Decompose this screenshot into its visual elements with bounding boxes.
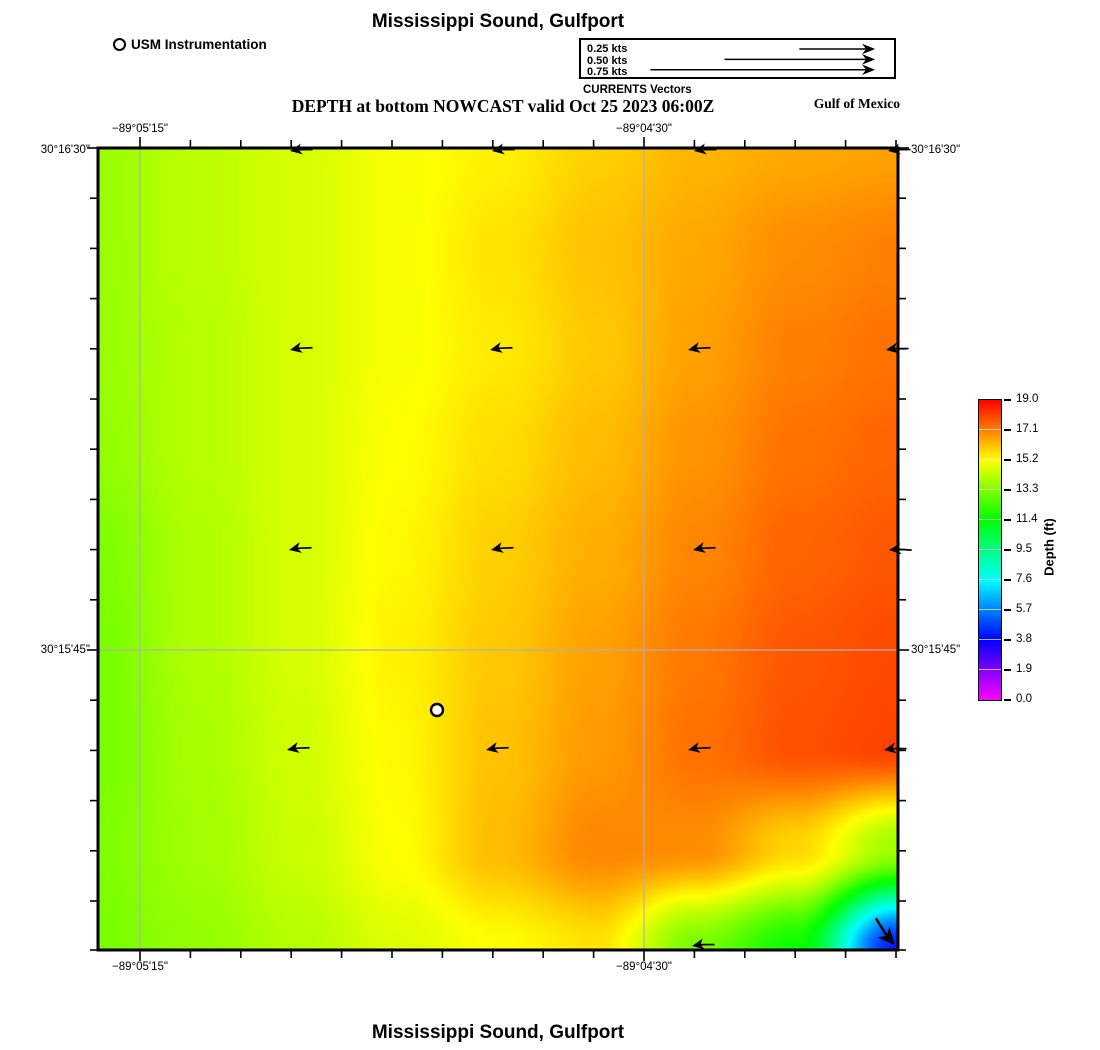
colorbar-tick	[1004, 639, 1012, 641]
colorbar-tick	[1004, 669, 1012, 671]
axis-tick-label: −89°05'15"	[112, 123, 168, 135]
colorbar-tick	[1004, 549, 1012, 551]
colorbar-tick-label: 11.4	[1016, 513, 1038, 525]
colorbar-gridline	[979, 639, 1001, 640]
station-marker-icon	[431, 704, 443, 716]
station-circle-icon	[113, 38, 126, 51]
instrumentation-legend: USM Instrumentation	[113, 37, 267, 52]
current-arrow-icon	[289, 340, 313, 355]
colorbar-tick-label: 9.5	[1016, 543, 1032, 555]
colorbar-gridline	[979, 669, 1001, 670]
current-arrow-icon	[288, 540, 312, 555]
current-arrow-icon	[286, 740, 310, 755]
current-arrow-icon	[687, 740, 711, 755]
legend-arrow-icon	[650, 65, 875, 75]
bottom-title: Mississippi Sound, Gulfport	[98, 1022, 898, 1044]
colorbar-tick-label: 3.8	[1016, 633, 1032, 645]
current-arrow-icon	[489, 340, 513, 355]
axis-tick-label: 30°16'30"	[41, 144, 90, 156]
axis-tick-label: −89°04'30"	[616, 123, 672, 135]
figure-root: Mississippi Sound, Gulfport USM Instrume…	[0, 0, 1100, 1050]
colorbar-tick-label: 1.9	[1016, 663, 1032, 675]
colorbar-tick	[1004, 399, 1012, 401]
colorbar-tick-label: 13.3	[1016, 483, 1038, 495]
axis-tick-label: 30°15'45"	[41, 644, 90, 656]
colorbar-tick-label: 7.6	[1016, 573, 1032, 585]
colorbar-tick	[1004, 519, 1012, 521]
current-arrow-icon	[490, 540, 514, 555]
colorbar	[978, 399, 1002, 701]
colorbar-gridline	[979, 429, 1001, 430]
colorbar-tick	[1004, 489, 1012, 491]
colorbar-gridline	[979, 609, 1001, 610]
legend-arrow-icon	[799, 44, 875, 54]
legend-arrow-icon	[724, 54, 875, 64]
colorbar-tick	[1004, 429, 1012, 431]
colorbar-gridline	[979, 549, 1001, 550]
colorbar-gridline	[979, 459, 1001, 460]
colorbar-tick-label: 17.1	[1016, 423, 1038, 435]
current-arrow-icon	[687, 340, 711, 355]
current-arrow-icon	[692, 540, 716, 555]
map-overlay	[98, 148, 898, 950]
current-arrow-icon	[485, 740, 509, 755]
axis-tick-label: 30°16'30"	[911, 144, 960, 156]
currents-legend-caption: CURRENTS Vectors	[583, 84, 692, 96]
colorbar-gridline	[979, 489, 1001, 490]
colorbar-tick	[1004, 699, 1012, 701]
current-arrow-icon	[883, 741, 907, 756]
colorbar-gridline	[979, 579, 1001, 580]
currents-legend-arrow-icons	[581, 40, 894, 77]
colorbar-gridline	[979, 519, 1001, 520]
colorbar-tick-label: 15.2	[1016, 453, 1038, 465]
current-arrow-icon	[867, 915, 901, 950]
axis-tick-label: −89°05'15"	[112, 961, 168, 973]
colorbar-tick	[1004, 579, 1012, 581]
axis-tick-label: 30°15'45"	[911, 644, 960, 656]
axis-tick-label: −89°04'30"	[616, 961, 672, 973]
colorbar-tick	[1004, 459, 1012, 461]
colorbar-tick-label: 19.0	[1016, 393, 1038, 405]
region-label: Gulf of Mexico	[760, 96, 900, 112]
colorbar-tick-label: 5.7	[1016, 603, 1032, 615]
depth-map-plot	[98, 148, 898, 950]
top-title: Mississippi Sound, Gulfport	[98, 11, 898, 33]
instrumentation-legend-label: USM Instrumentation	[131, 37, 267, 52]
colorbar-gradient	[979, 400, 1001, 700]
current-arrow-icon	[888, 542, 912, 555]
colorbar-tick-label: 0.0	[1016, 693, 1032, 705]
colorbar-tick	[1004, 609, 1012, 611]
colorbar-axis-label: Depth (ft)	[1042, 518, 1057, 576]
currents-legend-box: 0.25 kts 0.50 kts 0.75 kts	[579, 38, 896, 79]
